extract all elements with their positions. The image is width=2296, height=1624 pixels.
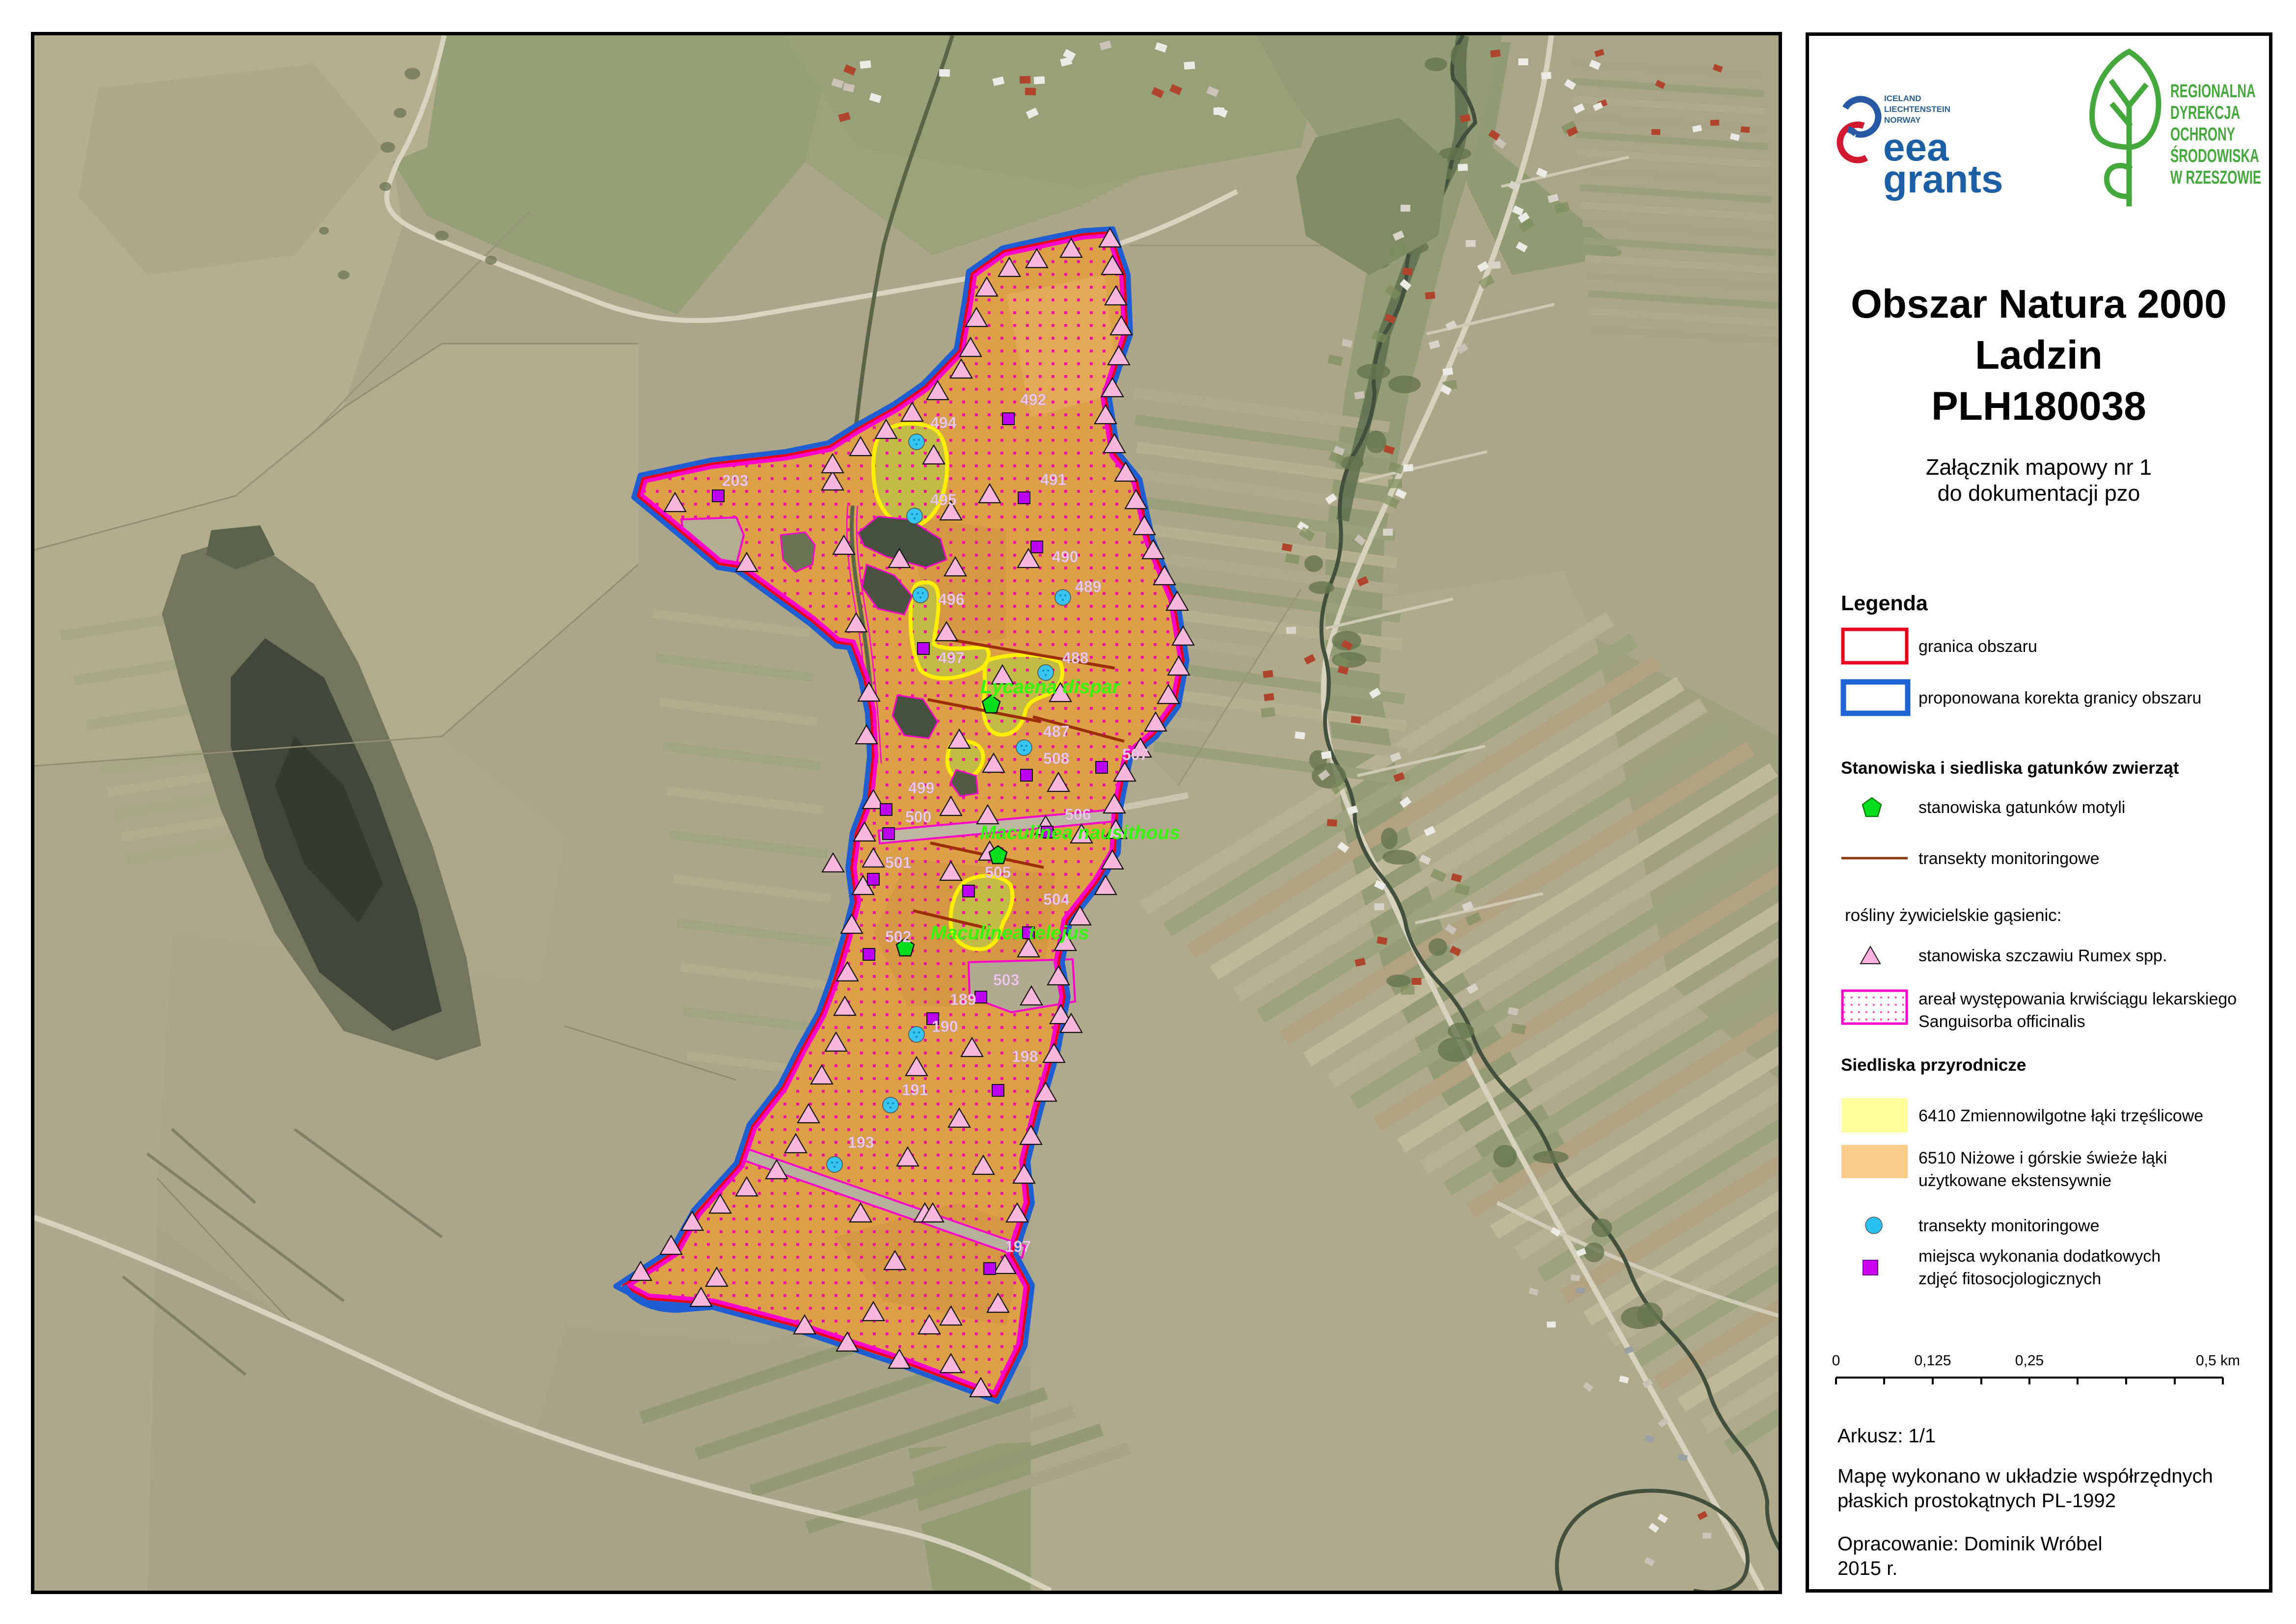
svg-text:6410 Zmiennowilgotne łąki trzę: 6410 Zmiennowilgotne łąki trzęślicowe [1918,1107,2203,1125]
svg-text:198: 198 [1012,1048,1038,1065]
svg-text:501: 501 [885,854,911,871]
svg-text:W RZESZOWIE: W RZESZOWIE [2170,167,2261,188]
svg-text:500: 500 [905,808,931,826]
svg-text:0,125: 0,125 [1914,1353,1951,1369]
svg-text:stanowiska gatunków motyli: stanowiska gatunków motyli [1918,798,2125,817]
svg-text:506: 506 [1065,806,1091,823]
svg-text:191: 191 [902,1081,928,1099]
svg-text:Mapę wykonano w układzie współ: Mapę wykonano w układzie współrzędnych [1837,1465,2213,1487]
svg-text:490: 490 [1052,548,1078,566]
svg-text:proponowana korekta granicy ob: proponowana korekta granicy obszaru [1918,689,2201,707]
svg-text:Stanowiska i siedliska gatunkó: Stanowiska i siedliska gatunków zwierząt [1841,758,2179,778]
svg-text:491: 491 [1040,471,1066,488]
svg-text:Legenda: Legenda [1841,592,1928,615]
svg-text:płaskich prostokątnych PL-1992: płaskich prostokątnych PL-1992 [1837,1490,2116,1512]
svg-text:499: 499 [908,779,934,797]
svg-text:0: 0 [1832,1353,1840,1369]
svg-text:grants: grants [1883,157,2003,201]
svg-text:Siedliska przyrodnicze: Siedliska przyrodnicze [1841,1056,2026,1075]
svg-text:2015 r.: 2015 r. [1837,1558,1897,1579]
svg-text:0,25: 0,25 [2015,1353,2044,1369]
svg-text:użytkowane ekstensywnie: użytkowane ekstensywnie [1918,1171,2111,1190]
svg-text:504: 504 [1043,891,1070,908]
svg-text:miejsca wykonania dodatkowych: miejsca wykonania dodatkowych [1918,1247,2161,1266]
svg-text:496: 496 [938,591,964,608]
svg-text:197: 197 [1005,1238,1031,1255]
svg-text:PLH180038: PLH180038 [1931,384,2146,429]
svg-text:502: 502 [885,928,911,946]
svg-text:REGIONALNA: REGIONALNA [2170,81,2256,101]
svg-text:do dokumentacji pzo: do dokumentacji pzo [1938,481,2140,506]
svg-text:497: 497 [938,649,964,667]
svg-text:507: 507 [1122,746,1148,763]
svg-text:Lycaena dispar: Lycaena dispar [980,677,1121,698]
svg-text:Opracowanie: Dominik Wróbel: Opracowanie: Dominik Wróbel [1837,1533,2102,1555]
svg-text:0,5 km: 0,5 km [2196,1353,2240,1369]
svg-text:Sanguisorba officinalis: Sanguisorba officinalis [1918,1012,2085,1031]
svg-text:488: 488 [1062,649,1088,667]
svg-text:stanowiska szczawiu Rumex spp.: stanowiska szczawiu Rumex spp. [1918,947,2167,965]
svg-text:189: 189 [950,991,976,1008]
svg-text:487: 487 [1043,723,1069,740]
svg-text:193: 193 [848,1134,874,1151]
svg-text:Ladzin: Ladzin [1975,333,2103,378]
svg-text:transekty monitoringowe: transekty monitoringowe [1918,849,2100,868]
svg-text:areał występowania krwiściągu: areał występowania krwiściągu lekarskieg… [1918,990,2237,1008]
svg-text:ŚRODOWISKA: ŚRODOWISKA [2170,145,2259,166]
svg-text:ICELAND: ICELAND [1884,94,1921,103]
svg-text:OCHRONY: OCHRONY [2170,124,2235,144]
svg-text:6510 Niżowe i górskie świeże ł: 6510 Niżowe i górskie świeże łąki [1918,1149,2167,1167]
svg-text:transekty monitoringowe: transekty monitoringowe [1918,1217,2100,1235]
svg-text:DYREKCJA: DYREKCJA [2170,102,2240,123]
svg-text:LIECHTENSTEIN: LIECHTENSTEIN [1884,105,1950,114]
svg-text:203: 203 [722,472,748,489]
svg-text:489: 489 [1075,578,1101,595]
svg-text:495: 495 [930,491,956,509]
svg-text:rośliny żywicielskie gąsienic:: rośliny żywicielskie gąsienic: [1845,906,2062,925]
svg-text:Załącznik mapowy nr 1: Załącznik mapowy nr 1 [1926,455,2152,480]
svg-text:505: 505 [985,864,1011,881]
svg-text:zdjęć fitosocjologicznych: zdjęć fitosocjologicznych [1918,1270,2101,1288]
svg-text:190: 190 [932,1018,958,1035]
svg-text:Maculinea telejus: Maculinea telejus [931,922,1089,944]
svg-text:Arkusz: 1/1: Arkusz: 1/1 [1837,1425,1936,1447]
svg-text:Obszar Natura 2000: Obszar Natura 2000 [1851,282,2227,326]
svg-text:Maculinea nausithous: Maculinea nausithous [980,822,1180,843]
svg-text:granica obszaru: granica obszaru [1918,637,2037,656]
svg-text:492: 492 [1020,391,1046,408]
svg-text:494: 494 [930,414,957,432]
svg-text:NORWAY: NORWAY [1884,115,1921,125]
svg-text:508: 508 [1043,750,1069,767]
svg-text:503: 503 [993,971,1019,989]
